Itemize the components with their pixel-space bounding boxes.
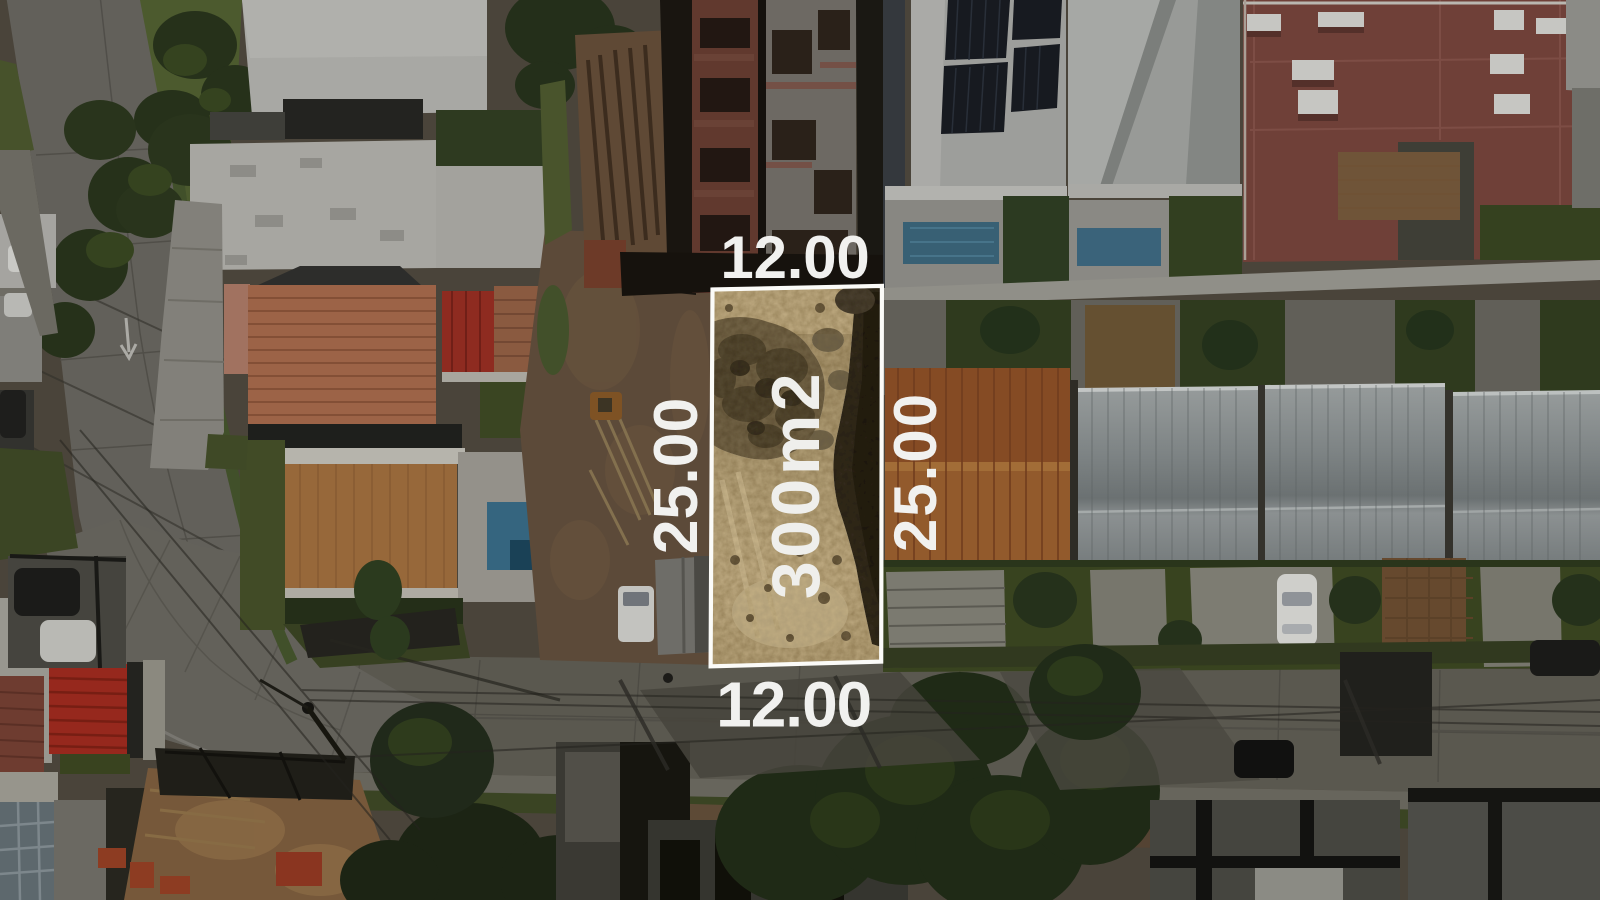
svg-text:12.00: 12.00 bbox=[716, 669, 871, 741]
svg-text:25.00: 25.00 bbox=[641, 398, 711, 554]
svg-text:25.00: 25.00 bbox=[882, 392, 949, 552]
svg-text:12.00: 12.00 bbox=[720, 224, 869, 291]
svg-text:300m2: 300m2 bbox=[758, 370, 834, 599]
